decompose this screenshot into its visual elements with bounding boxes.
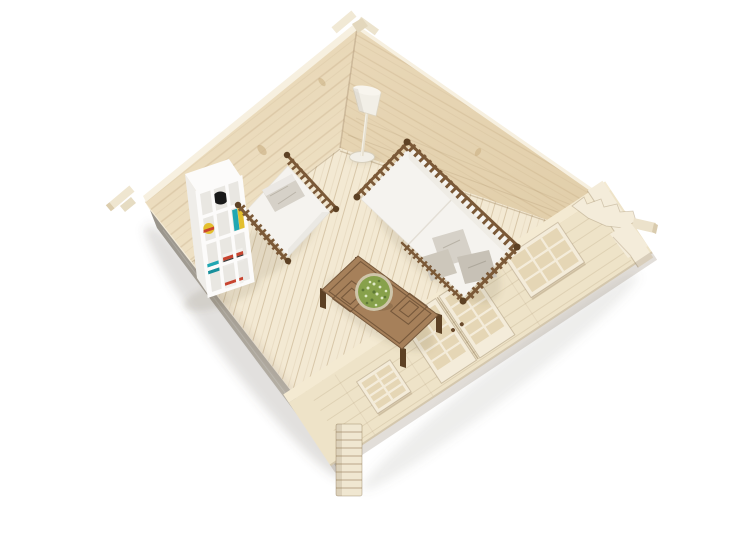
black-bowl <box>213 192 228 205</box>
corner-post <box>336 424 362 496</box>
photo-stage <box>0 0 750 533</box>
table-leg <box>400 347 406 368</box>
cabin-photo <box>0 0 750 533</box>
potted-plant <box>355 273 393 311</box>
